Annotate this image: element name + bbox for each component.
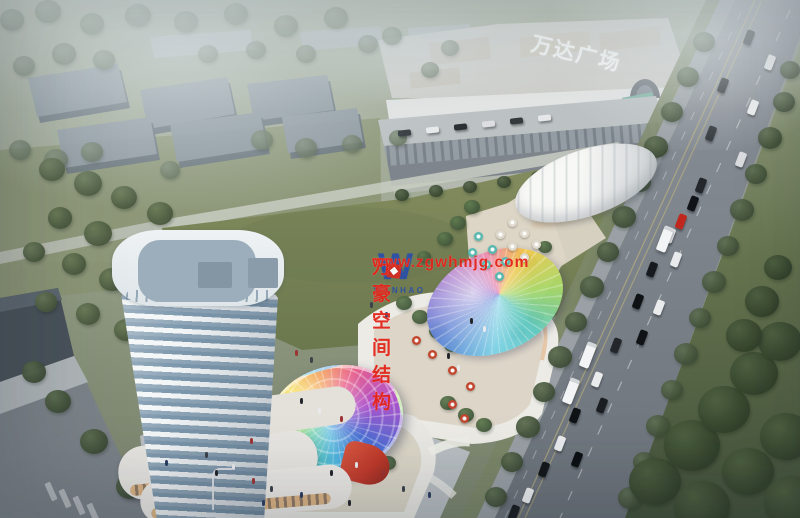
watermark-website: www.zgwhmjg.com: [372, 254, 529, 272]
watermark-company: 万豪空间结构: [372, 252, 394, 414]
bottom-left-block: [0, 288, 150, 518]
aerial-rendering: 万达广场 W WANHAO 万豪空间结构 www.zgwhm: [0, 0, 800, 518]
